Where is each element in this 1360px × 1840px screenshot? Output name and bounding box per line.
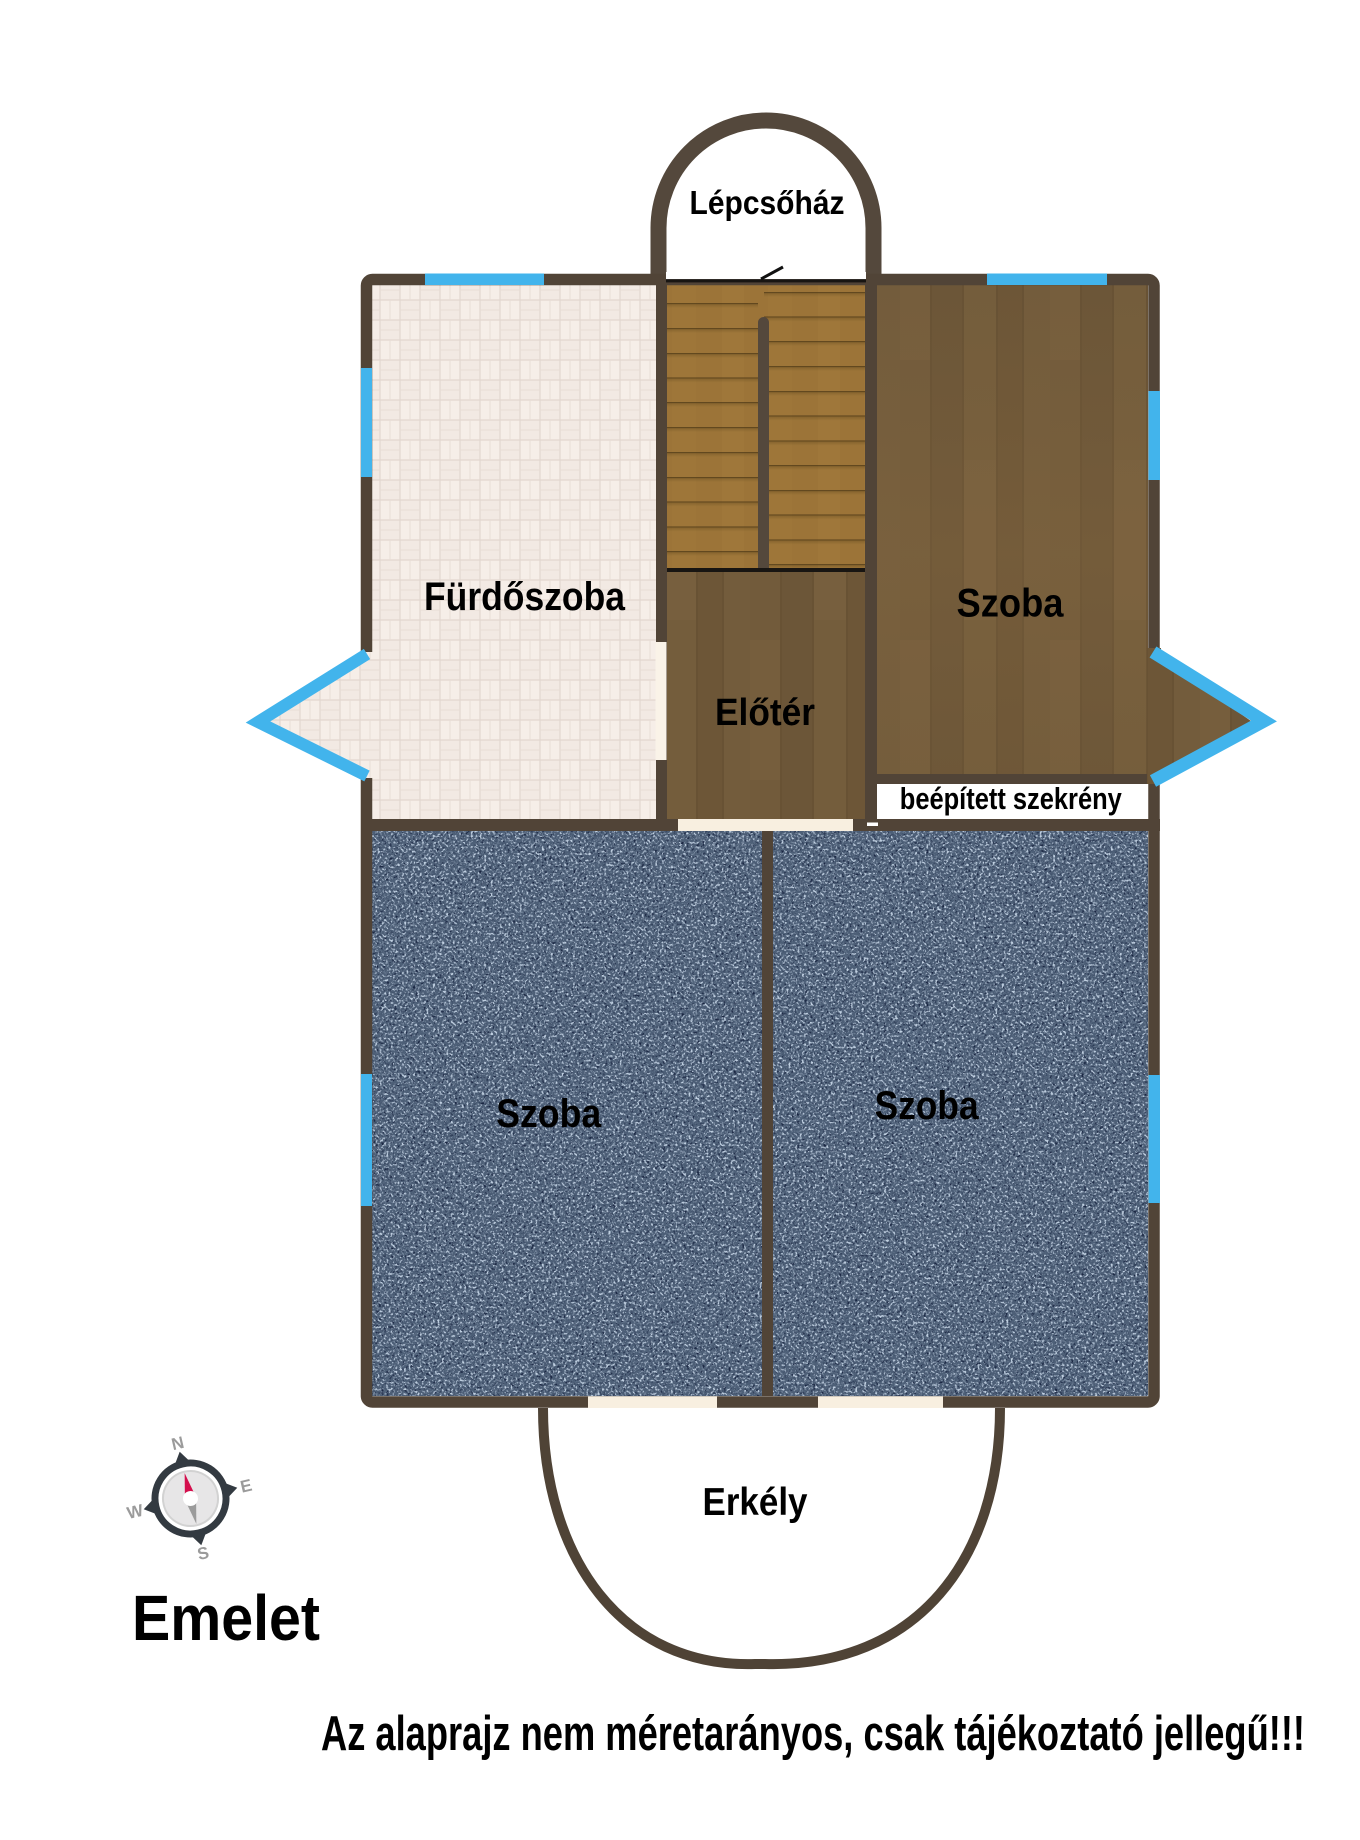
svg-text:Szoba: Szoba bbox=[875, 1084, 980, 1128]
svg-text:Szoba: Szoba bbox=[957, 582, 1065, 626]
svg-text:Lépcsőház: Lépcsőház bbox=[690, 184, 845, 221]
svg-text:Fürdőszoba: Fürdőszoba bbox=[424, 575, 626, 619]
svg-text:Emelet: Emelet bbox=[132, 1582, 320, 1654]
svg-text:Az alaprajz nem méretarányos,: Az alaprajz nem méretarányos, csak tájék… bbox=[321, 1707, 1305, 1761]
svg-text:Előtér: Előtér bbox=[715, 692, 815, 734]
svg-text:beépített szekrény: beépített szekrény bbox=[900, 781, 1123, 816]
svg-text:Szoba: Szoba bbox=[496, 1092, 602, 1136]
svg-text:Erkély: Erkély bbox=[703, 1481, 808, 1524]
